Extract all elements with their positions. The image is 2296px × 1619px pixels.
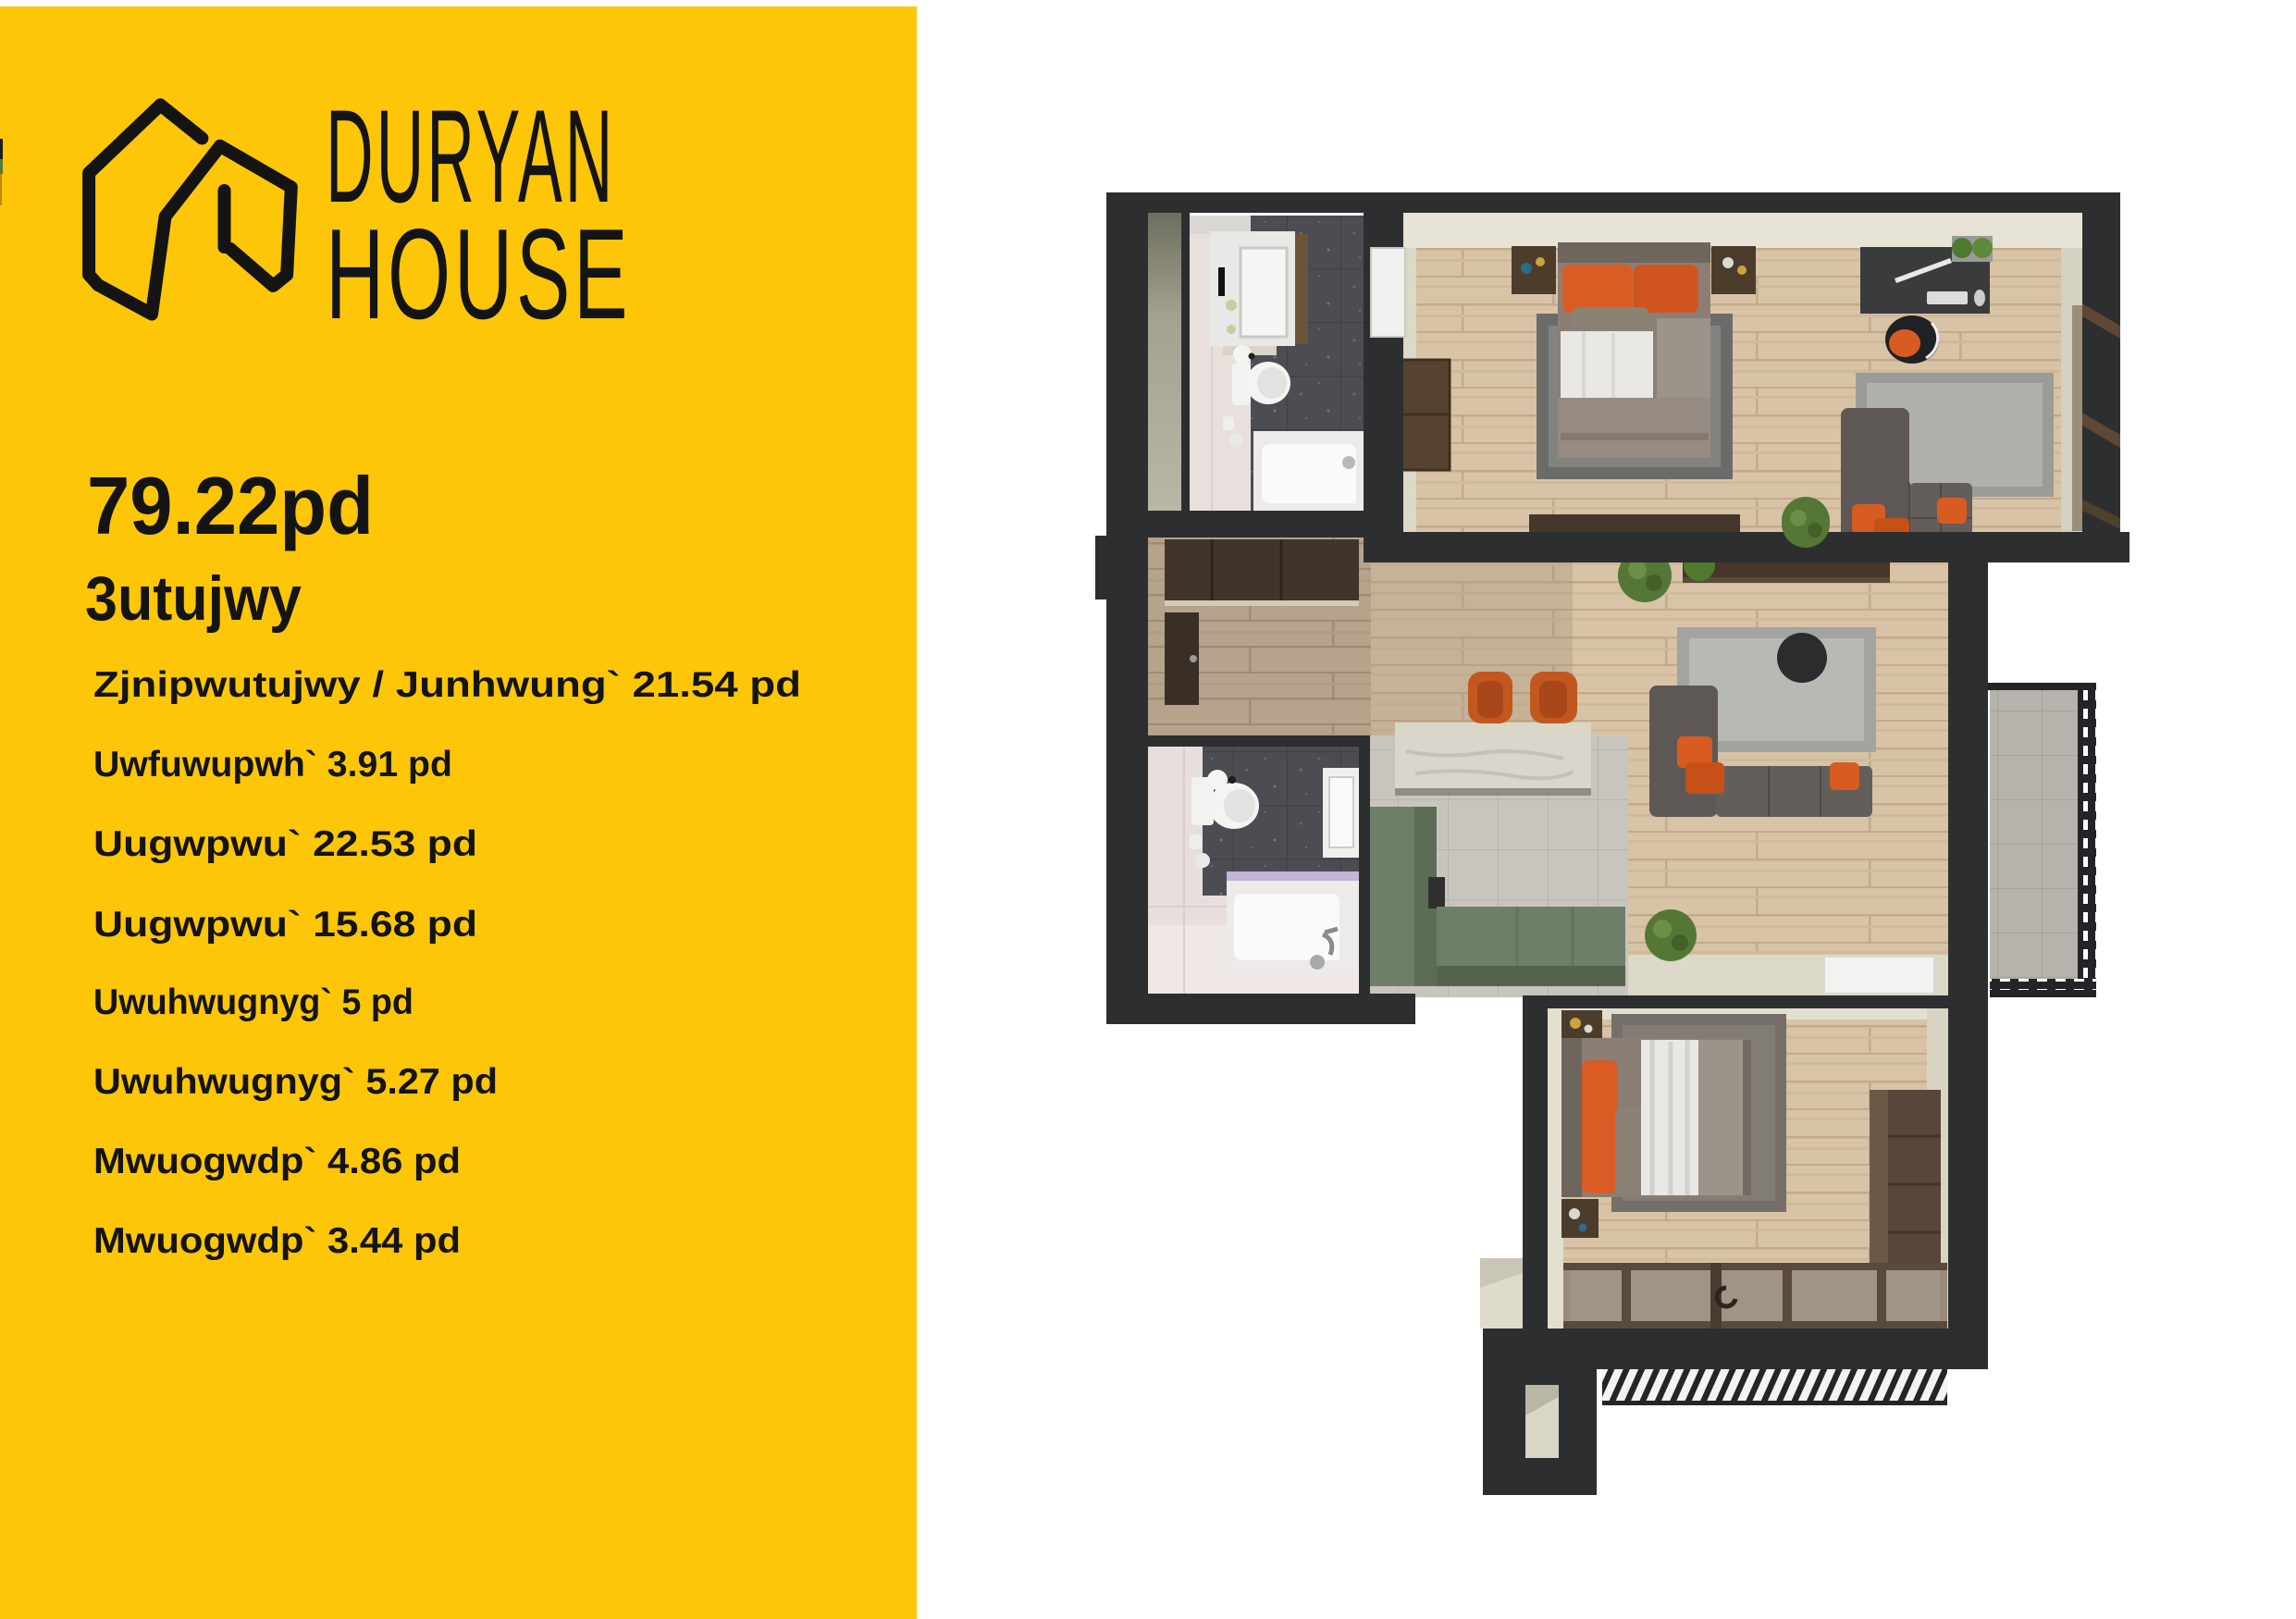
svg-text:Uugwpwu` 22.53 pd: Uugwpwu` 22.53 pd [93,824,477,864]
svg-text:Mwuogwdp` 4.86 pd: Mwuogwdp` 4.86 pd [93,1142,461,1181]
svg-text:Uwuhwugnyg` 5.27 pd: Uwuhwugnyg` 5.27 pd [93,1062,498,1102]
svg-text:Mwuogwdp` 3.44 pd: Mwuogwdp` 3.44 pd [93,1221,461,1261]
svg-text:79.22pd: 79.22pd [87,460,374,551]
svg-text:Uwfuwupwh` 3.91 pd: Uwfuwupwh` 3.91 pd [93,745,452,785]
svg-text:Zjnipwutujwy / Junhwung` 21.54: Zjnipwutujwy / Junhwung` 21.54 pd [93,665,801,705]
svg-text:HOUSE: HOUSE [326,202,631,346]
svg-text:3utujwy: 3utujwy [85,563,302,634]
svg-text:Uugwpwu` 15.68 pd: Uugwpwu` 15.68 pd [93,905,477,945]
svg-text:Uwuhwugnyg` 5 pd: Uwuhwugnyg` 5 pd [93,983,414,1022]
